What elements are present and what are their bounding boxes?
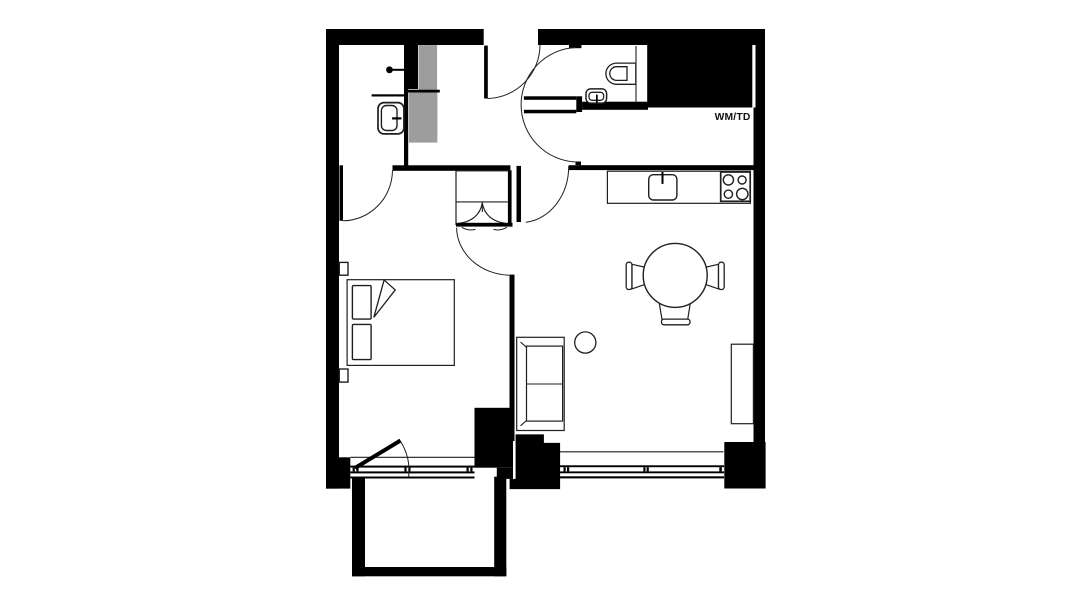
svg-text:WM/TD: WM/TD <box>715 112 751 123</box>
